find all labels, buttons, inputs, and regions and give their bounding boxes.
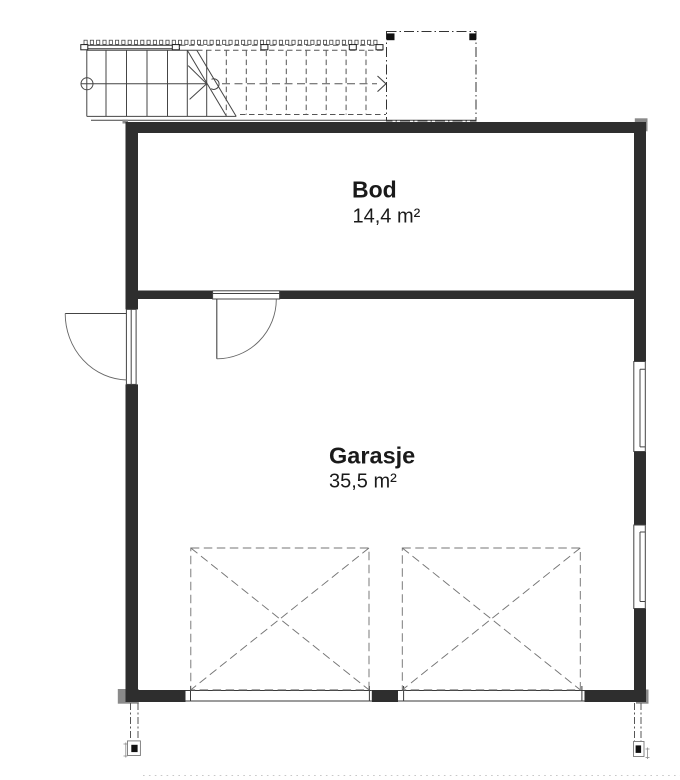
svg-text:35,5 m²: 35,5 m² <box>329 471 397 493</box>
svg-text:14,4 m²: 14,4 m² <box>353 206 421 228</box>
svg-text:Bod: Bod <box>352 177 397 203</box>
svg-text:Garasje: Garasje <box>329 443 415 469</box>
